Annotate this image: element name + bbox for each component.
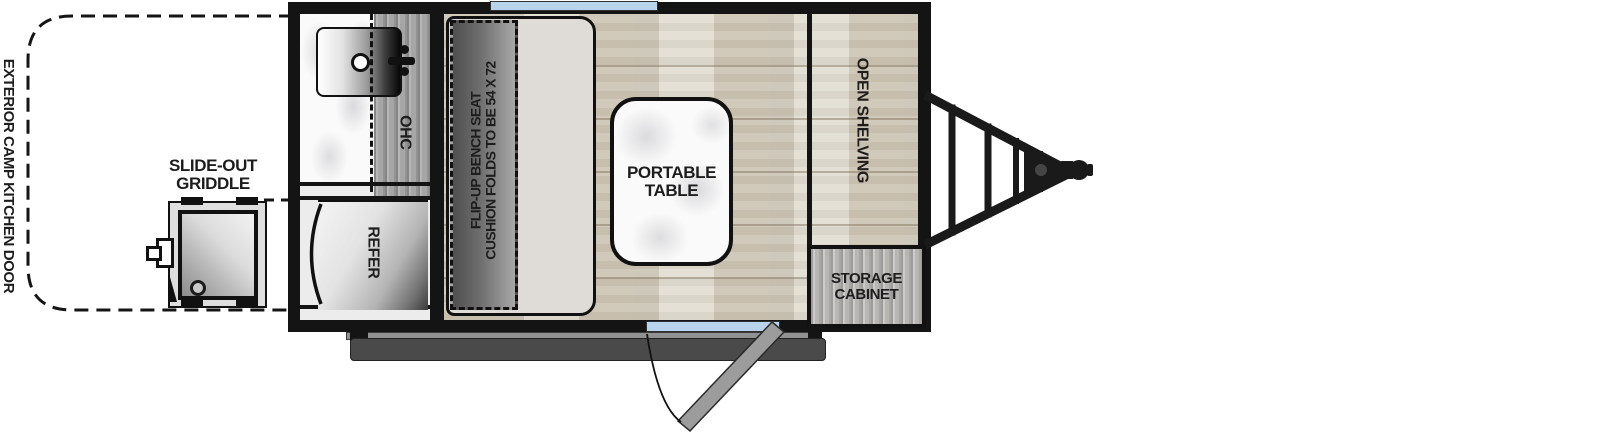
- hitch-coupler-plate: [1024, 149, 1072, 191]
- griddle-label-line1: SLIDE-OUT: [169, 156, 257, 175]
- entry-step: [350, 338, 826, 361]
- griddle-label-line2: GRIDDLE: [176, 174, 250, 193]
- table-label-line2: TABLE: [645, 181, 698, 200]
- storage-cabinet-label: STORAGE CABINET: [831, 271, 902, 302]
- griddle-tab-top-right: [236, 197, 258, 205]
- faucet-icon: [388, 57, 415, 65]
- portable-table-label: PORTABLE TABLE: [627, 164, 716, 199]
- storage-cabinet: STORAGE CABINET: [807, 245, 926, 328]
- faucet-knob-top-icon: [400, 45, 409, 54]
- counter-divider-dashed: [370, 14, 373, 192]
- storage-label-line1: STORAGE: [831, 270, 902, 287]
- hitch-ball-nub: [1087, 164, 1093, 176]
- griddle-tab-top-left: [181, 197, 203, 205]
- hitch-ball-neck: [1060, 161, 1074, 179]
- hitch-a-frame: [929, 97, 1062, 243]
- exterior-door-label: EXTERIOR CAMP KITCHEN DOOR: [0, 59, 16, 289]
- griddle-tab-bottom-right: [236, 300, 258, 308]
- bench-label: FLIP-UP BENCH SEAT CUSHION FOLDS TO BE 5…: [468, 21, 497, 301]
- hitch-bar-bottom: [929, 177, 1062, 243]
- floorplan-canvas: OHC REFER FLIP-UP BENCH SEAT CUSHION FOL…: [0, 0, 1600, 433]
- table-label-line1: PORTABLE: [627, 163, 716, 182]
- griddle-tab-bottom-left: [181, 300, 203, 308]
- refer-label: REFER: [364, 207, 381, 297]
- hitch-ball-icon: [1069, 160, 1089, 180]
- counter-edge-line: [300, 182, 430, 186]
- galley-partition-wall: [430, 14, 444, 320]
- entry-door-opening: [646, 321, 780, 332]
- open-shelving-label: OPEN SHELVING: [853, 10, 870, 230]
- shelving-divider-wall: [807, 14, 812, 247]
- griddle-drain: [190, 280, 206, 296]
- storage-label-line2: CABINET: [835, 286, 899, 303]
- window-top: [490, 1, 658, 11]
- sink-drain: [351, 53, 370, 72]
- slide-out-griddle-label: SLIDE-OUT GRIDDLE: [133, 157, 293, 192]
- bench-label-line2: CUSHION FOLDS TO BE 54 X 72: [482, 61, 498, 259]
- portable-table: PORTABLE TABLE: [610, 97, 733, 266]
- hitch-bar-top: [929, 97, 1062, 167]
- faucet-knob-bottom-icon: [400, 67, 409, 76]
- hitch-coupler-hole: [1035, 164, 1047, 176]
- ohc-label: OHC: [396, 102, 413, 162]
- griddle-handle-stub-icon: [146, 246, 162, 261]
